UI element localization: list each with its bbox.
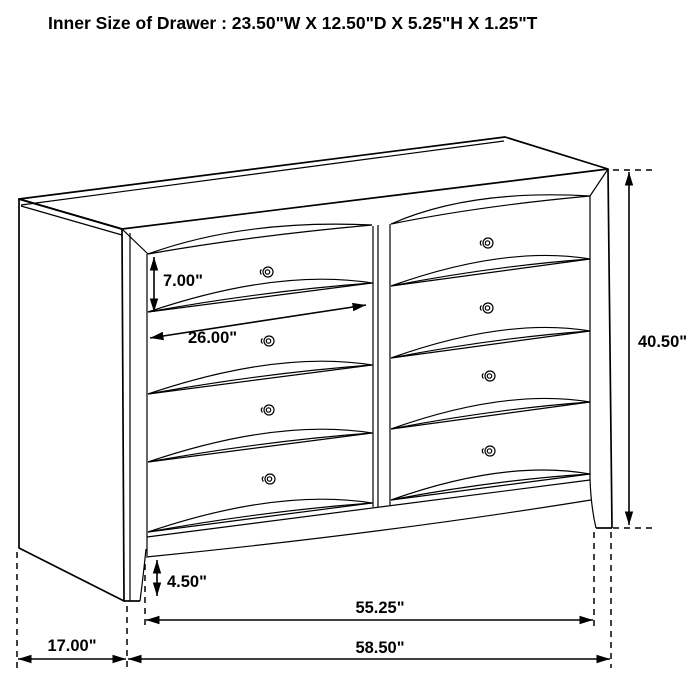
dimension-diagram-canvas: Inner Size of Drawer : 23.50"W X 12.50"D… bbox=[0, 0, 700, 700]
drawer-knob bbox=[480, 238, 493, 248]
overall-height-label: 40.50" bbox=[638, 333, 687, 351]
case-width-dimension: 55.25" bbox=[146, 599, 593, 620]
drawer-knob bbox=[261, 336, 274, 346]
drawer-opening-height-label: 7.00" bbox=[163, 272, 203, 290]
drawer-knob bbox=[260, 267, 273, 277]
base-height-dimension: 4.50" bbox=[157, 560, 207, 596]
dresser-left-side-panel bbox=[19, 199, 130, 601]
overall-width-label: 58.50" bbox=[355, 639, 404, 657]
base-height-label: 4.50" bbox=[167, 573, 207, 591]
drawer-knob bbox=[261, 405, 274, 415]
overall-width-dimension: 58.50" bbox=[128, 639, 610, 659]
dresser-front-frame bbox=[122, 169, 612, 601]
drawer-width-dimension: 26.00" bbox=[150, 305, 366, 347]
drawer-knob bbox=[480, 303, 493, 313]
drawer-knob bbox=[482, 371, 495, 381]
left-drawer-column bbox=[148, 279, 372, 532]
drawer-width-label: 26.00" bbox=[188, 329, 237, 347]
dresser-drawing bbox=[19, 137, 612, 601]
drawer-knob bbox=[262, 474, 275, 484]
drawer-knob bbox=[482, 446, 495, 456]
depth-label: 17.00" bbox=[47, 637, 96, 655]
crown-band bbox=[148, 195, 590, 254]
depth-dimension: 17.00" bbox=[18, 637, 126, 659]
dresser-dimension-diagram: 7.00" 26.00" 40.50" 4.50" 55.25" 58.50" … bbox=[0, 0, 700, 700]
case-width-label: 55.25" bbox=[355, 599, 404, 617]
dresser-top bbox=[19, 137, 608, 235]
extension-lines bbox=[17, 170, 657, 668]
overall-height-dimension: 40.50" bbox=[629, 172, 687, 525]
